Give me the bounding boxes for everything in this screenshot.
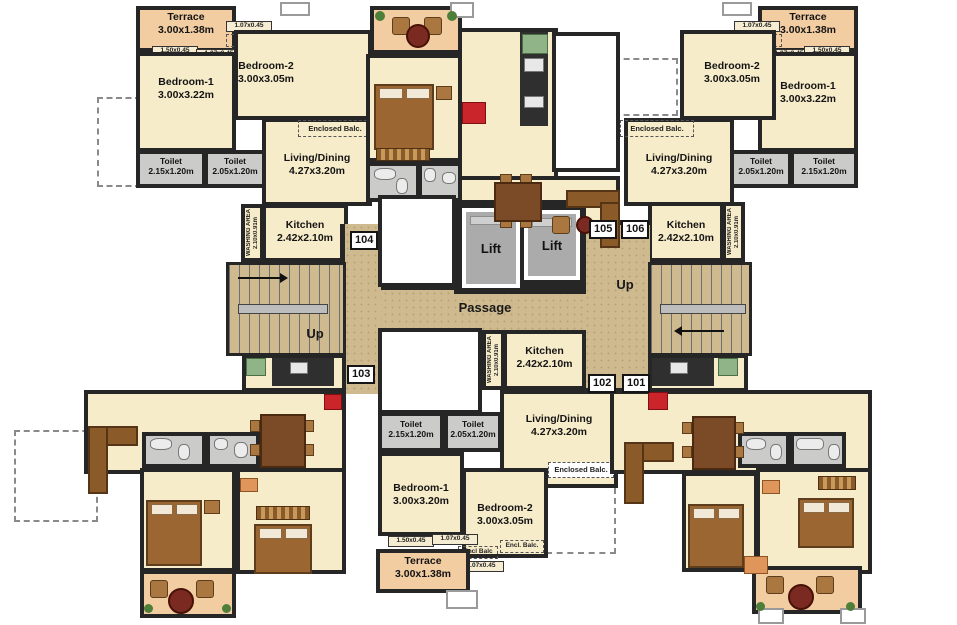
room-toilet-bottom-right-a [738,432,790,468]
stove [524,58,544,72]
double-bed [254,524,312,574]
room-label: Bedroom-2 3.00x3.05m [216,60,316,86]
room-dims: 2.05x1.20m [730,166,792,176]
dining-table [494,182,542,222]
encl-balc-text: Enclosed Balc. [308,125,361,133]
room-name: Kitchen [503,345,586,358]
pillow [693,508,715,519]
corridor-right [584,224,650,394]
bench [240,478,258,492]
room-dims: 4.27x3.20m [626,165,732,178]
room-label: Terrace 3.00x1.38m [136,11,236,37]
stair-direction-arrow [682,330,724,332]
balcony-tab [446,590,478,609]
pillow [151,504,173,515]
stove [290,362,308,374]
room-name: Toilet [730,156,792,166]
dining-chair [250,444,260,456]
room-name: Living/Dining [264,152,370,165]
washing-name: WASHING AREA [487,336,493,383]
room-name: Terrace [136,11,236,24]
round-table [788,584,814,610]
unit-tag-104: 104 [350,231,378,250]
washing-dims: 2.10x0.91m [734,216,740,248]
washing-name: WASHING AREA [727,208,733,255]
room-dims: 2.15x1.20m [138,166,204,176]
room-dims: 3.00x3.05m [682,73,782,86]
room-dims: 4.27x3.20m [502,426,616,439]
dim-text: 1.07x0.45 [467,563,496,570]
double-bed [688,504,744,568]
room-name: Toilet [204,156,266,166]
double-bed [798,498,854,548]
floor-plan: Terrace 3.00x1.38m 1.50x0.45 1.07x0.45 E… [0,0,957,625]
washing-area-label: WASHING AREA 2.10x0.91m [723,204,744,260]
plant [756,602,765,611]
kitchen-sink [246,358,266,376]
dining-chair [250,420,260,432]
stove [670,362,688,374]
tv-unit [324,394,342,410]
room-label: Terrace 3.00x1.38m [376,555,470,581]
washing-area-label: WASHING AREA 2.10x0.91m [483,332,504,388]
room-toilet-bottom-left-a [142,432,206,468]
pillow [259,528,282,539]
dim-text: 1.07x0.45 [441,536,470,543]
room-dims: 2.15x1.20m [791,166,857,176]
bathtub [796,438,824,450]
sofa [624,442,644,504]
washing-name: WASHING AREA [246,209,252,256]
dim-text: 1.50x0.45 [397,538,426,545]
balcony-tab [840,608,866,624]
fridge [462,102,486,124]
dim-text: 1.07x0.45 [743,23,772,30]
dim-text: 1.07x0.45 [235,23,264,30]
room-dims: 3.00x3.20m [378,495,464,508]
room-name: Terrace [376,555,470,568]
encl-balc-text: Enclosed Balc. [630,125,683,133]
unit-tag-106: 106 [621,220,649,239]
room-label: Living/Dining 4.27x3.20m [264,152,370,178]
round-table [168,588,194,614]
room-dims: 2.05x1.20m [204,166,266,176]
up-label-left: Up [298,327,332,341]
room-label: Bedroom-2 3.00x3.05m [682,60,782,86]
enclosed-balc-box: Enclosed Balc. [298,120,372,137]
bench [744,556,768,574]
pillow [803,502,825,513]
bench [762,480,780,494]
balcony-tab [722,2,752,16]
room-label: Toilet 2.05x1.20m [204,156,266,176]
unit-tag-103: 103 [347,365,375,384]
room-name: Toilet [791,156,857,166]
pillow [176,504,198,515]
room-name: Toilet [379,419,443,429]
room-name: Kitchen [648,219,724,232]
room-dims: 3.00x1.38m [136,24,236,37]
room-label: Toilet 2.05x1.20m [444,419,502,439]
room-label: Living/Dining 4.27x3.20m [502,413,616,439]
plant [375,11,385,21]
room-label: Bedroom-2 3.00x3.05m [462,502,548,528]
washing-dims: 2.10x0.91m [494,344,500,376]
room-dims: 4.27x3.20m [264,165,370,178]
dining-chair [682,422,692,434]
encl-balc-text: Enclosed Balc. [554,466,607,474]
toilet-seat [234,442,248,458]
armchair [552,216,570,234]
bedside-table [204,500,220,514]
plant [447,11,457,21]
room-name: Bedroom-1 [378,482,464,495]
room-name: Kitchen [262,219,348,232]
stair-handrail [238,304,328,314]
room-empty-left-of-lifts [378,195,456,287]
room-dims: 3.00x3.22m [136,89,236,102]
room-name: Living/Dining [502,413,616,426]
washing-dims: 2.10x0.91m [253,217,259,249]
wardrobe [376,148,430,161]
room-name: Bedroom-2 [216,60,316,73]
counter-appliance [524,96,544,108]
room-name: Toilet [138,156,204,166]
pillow [285,528,308,539]
encl-balc-small: Encl. Balc. [500,540,544,553]
room-label: Toilet 2.15x1.20m [379,419,443,439]
room-label: Toilet 2.05x1.20m [730,156,792,176]
terrace-chair [196,580,214,598]
kitchen-sink [522,34,548,54]
plant [222,604,231,613]
room-dims: 3.00x3.05m [462,515,548,528]
dining-table [692,416,736,470]
dining-chair [682,446,692,458]
washbasin [374,168,396,180]
pillow [718,508,740,519]
washbasin [424,168,436,182]
dim-box: 1.50x0.45 [388,536,434,547]
wardrobe [256,506,310,520]
unit-tag-105: 105 [589,220,617,239]
plant [144,604,153,613]
stair-arrow-head [674,326,682,336]
washbasin [214,438,228,450]
room-name: Bedroom-2 [682,60,782,73]
up-label-right: Up [608,278,642,292]
room-label: Bedroom-1 3.00x3.20m [378,482,464,508]
room-name: Toilet [444,419,502,429]
unit-tag-102: 102 [588,374,616,393]
terrace-chair [816,576,834,594]
room-label: Kitchen 2.42x2.10m [648,219,724,245]
dashed-open-area-left [97,97,141,187]
room-label: Toilet 2.15x1.20m [138,156,204,176]
lift-label: Lift [542,238,562,253]
room-dims: 2.42x2.10m [503,358,586,371]
room-label: Kitchen 2.42x2.10m [262,219,348,245]
terrace-chair [150,580,168,598]
encl-balc-text: Encl. Balc. [506,543,539,550]
room-dims: 2.15x1.20m [379,429,443,439]
toilet-seat [770,444,782,460]
lift-label: Lift [481,241,501,256]
balcony-tab [280,2,310,16]
washing-area-label: WASHING AREA 2.10x0.91m [242,206,263,260]
room-empty-bottom-center [378,328,482,414]
pillow [828,502,850,513]
room-name: Bedroom-2 [462,502,548,515]
room-label: Living/Dining 4.27x3.20m [626,152,732,178]
room-dims: 2.42x2.10m [262,232,348,245]
room-dims: 2.05x1.20m [444,429,502,439]
enclosed-balc-box: Enclosed Balc. [548,462,614,478]
dim-box: 1.07x0.45 [432,534,478,545]
kitchen-sink [718,358,738,376]
room-name: Living/Dining [626,152,732,165]
double-bed [146,500,202,566]
stair-arrow-head [280,273,288,283]
terrace-chair [766,576,784,594]
passage-label: Passage [430,301,540,315]
plant [846,602,855,611]
toilet-seat [442,172,456,184]
stair-direction-arrow [238,277,280,279]
washbasin [150,438,172,450]
double-bed [374,84,434,150]
enclosed-balc-box: Enclosed Balc. [620,120,694,137]
wardrobe [818,476,856,490]
room-label: Toilet 2.15x1.20m [791,156,857,176]
room-dims: 2.42x2.10m [648,232,724,245]
unit-tag-101: 101 [622,374,650,393]
toilet-seat [178,444,190,460]
room-dims: 3.00x3.05m [216,73,316,86]
toilet-seat [828,444,840,460]
room-dims: 3.00x1.38m [376,568,470,581]
stair-handrail [660,304,746,314]
pillow [379,88,402,99]
round-table [406,24,430,48]
sofa [88,426,108,494]
washbasin [746,438,766,450]
dashed-open-area-top-right [614,58,678,116]
bedside-table [436,86,452,100]
room-label: Kitchen 2.42x2.10m [503,345,586,371]
room-empty-top-center [552,32,620,172]
dining-table [260,414,306,468]
tv-unit [648,392,668,410]
pillow [406,88,429,99]
toilet-seat [396,178,408,194]
